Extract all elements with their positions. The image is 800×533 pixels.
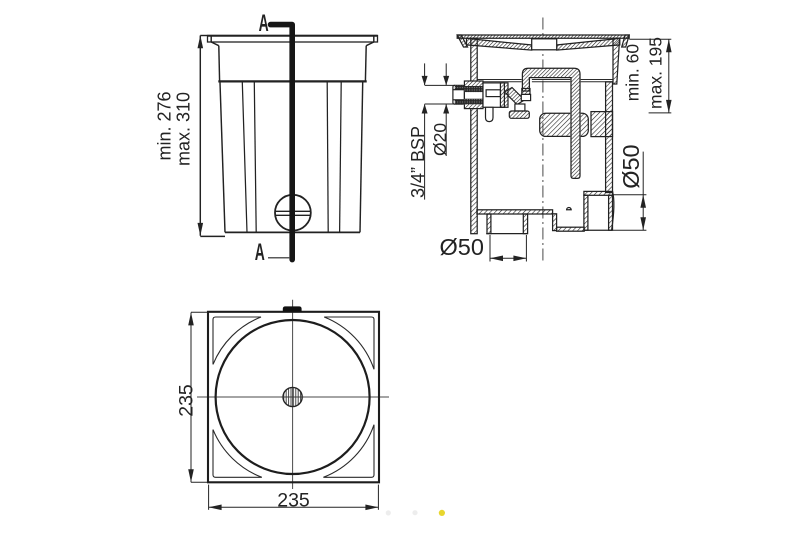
svg-text:3/4” BSP: 3/4” BSP [408,126,428,198]
svg-text:Ø50: Ø50 [618,144,644,188]
svg-text:A: A [259,10,269,37]
svg-text:Ø50: Ø50 [439,234,483,260]
svg-text:A: A [255,239,265,266]
svg-text:min. 60: min. 60 [623,44,643,102]
svg-text:min. 276: min. 276 [155,91,175,160]
svg-text:Ø20: Ø20 [430,123,450,156]
svg-text:max. 310: max. 310 [173,92,193,166]
svg-text:235: 235 [176,384,198,417]
svg-text:235: 235 [277,489,310,511]
svg-text:max. 195: max. 195 [646,37,666,109]
